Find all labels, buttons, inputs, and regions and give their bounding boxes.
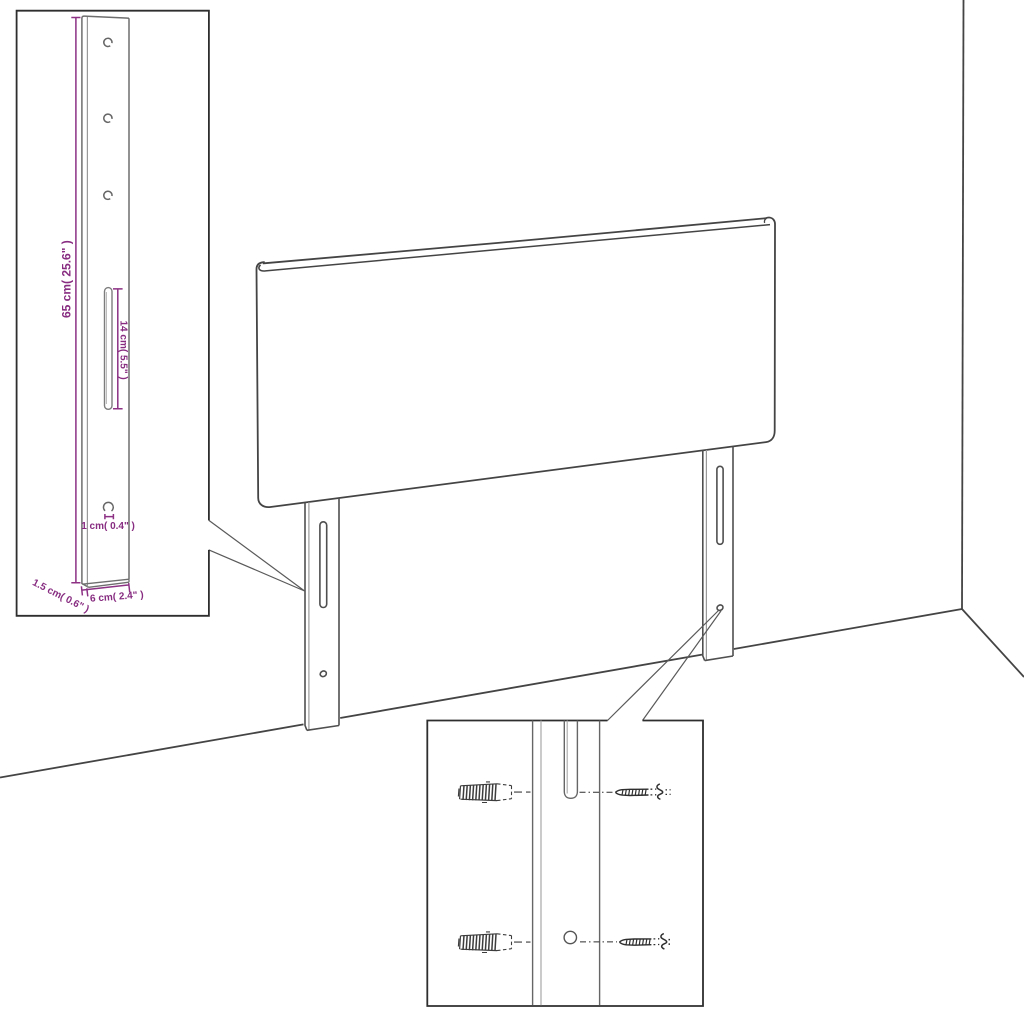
svg-text:65 cm( 25.6" ): 65 cm( 25.6" ) bbox=[59, 240, 73, 318]
svg-text:14 cm( 5.5" ): 14 cm( 5.5" ) bbox=[117, 321, 128, 380]
svg-text:6 cm( 2.4" ): 6 cm( 2.4" ) bbox=[90, 590, 144, 605]
svg-text:1 cm( 0.4" ): 1 cm( 0.4" ) bbox=[81, 521, 135, 532]
